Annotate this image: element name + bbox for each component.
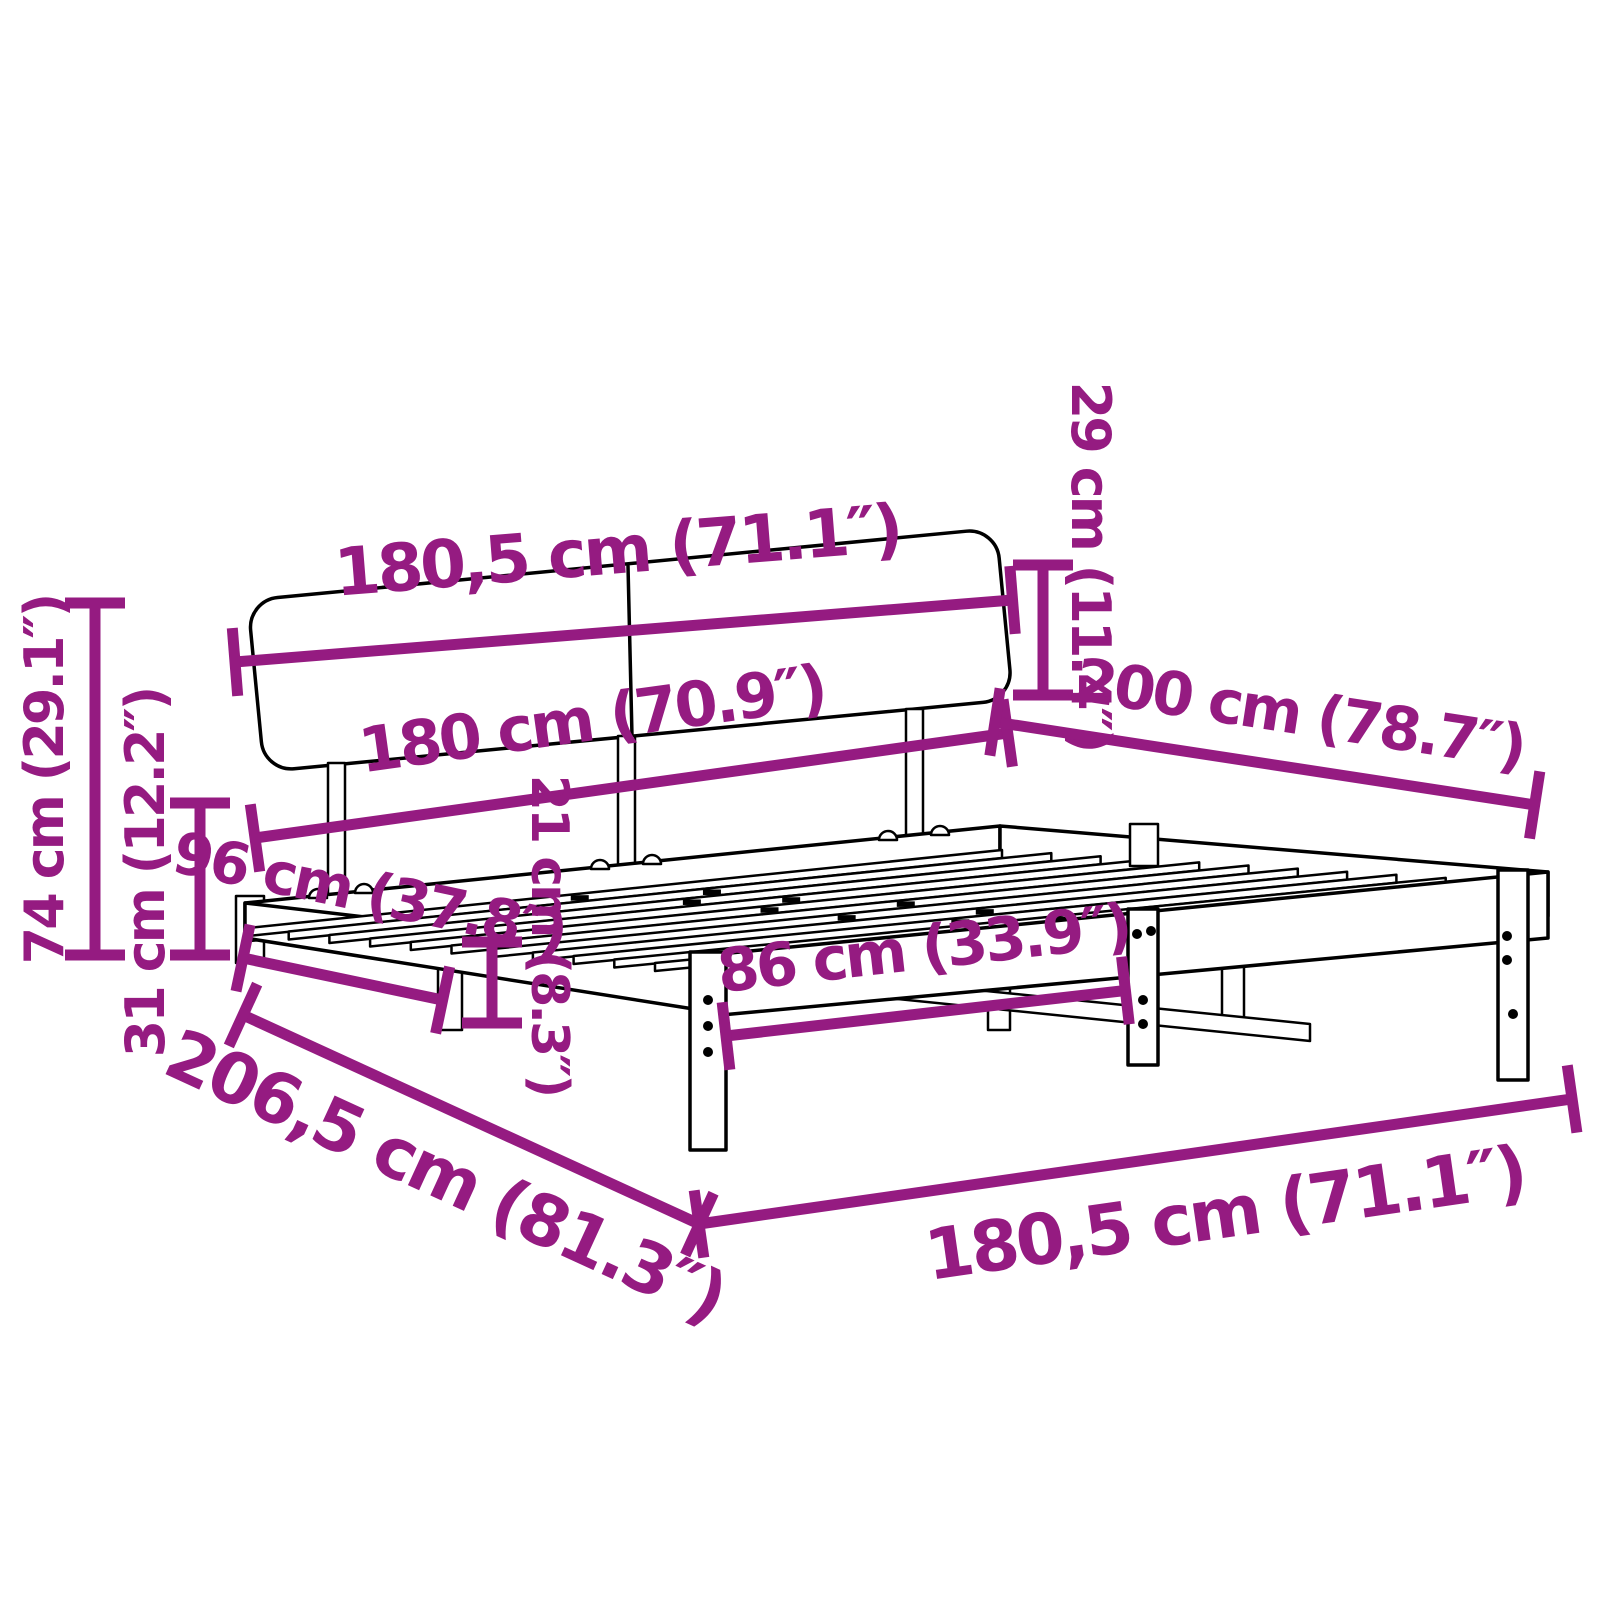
foot-right-leg	[1498, 870, 1528, 1080]
corner-bracket	[1130, 824, 1158, 866]
headboard-post	[906, 709, 923, 839]
dim-label-total-height: 74 cm (29.1″)	[13, 596, 76, 965]
dim-frame-width-front: 180,5 cm (71.1″)	[694, 1065, 1587, 1328]
dim-label-under-bed-clearance: 21 cm (8.3″)	[519, 775, 579, 1095]
bed-dimension-diagram: 180,5 cm (71.1″) 29 cm (11.4″) 180 cm (7…	[0, 0, 1600, 1600]
dim-total-height: 74 cm (29.1″)	[13, 596, 125, 965]
dim-label-total-length: 206,5 cm (81.3″)	[153, 1013, 737, 1339]
dim-label-frame-height: 31 cm (12.2″)	[114, 689, 177, 1058]
dim-label-bed-length: 200 cm (78.7″)	[1071, 645, 1529, 783]
bed-drawing	[236, 528, 1548, 1150]
diagram-canvas: 180,5 cm (71.1″) 29 cm (11.4″) 180 cm (7…	[0, 0, 1600, 1600]
bolt-dome	[931, 826, 949, 835]
bolt-dome	[879, 831, 897, 840]
dim-label-frame-width-front: 180,5 cm (71.1″)	[920, 1130, 1530, 1297]
bolt-dome	[643, 855, 661, 864]
headboard-post	[618, 736, 635, 868]
bolt-dome	[591, 860, 609, 869]
